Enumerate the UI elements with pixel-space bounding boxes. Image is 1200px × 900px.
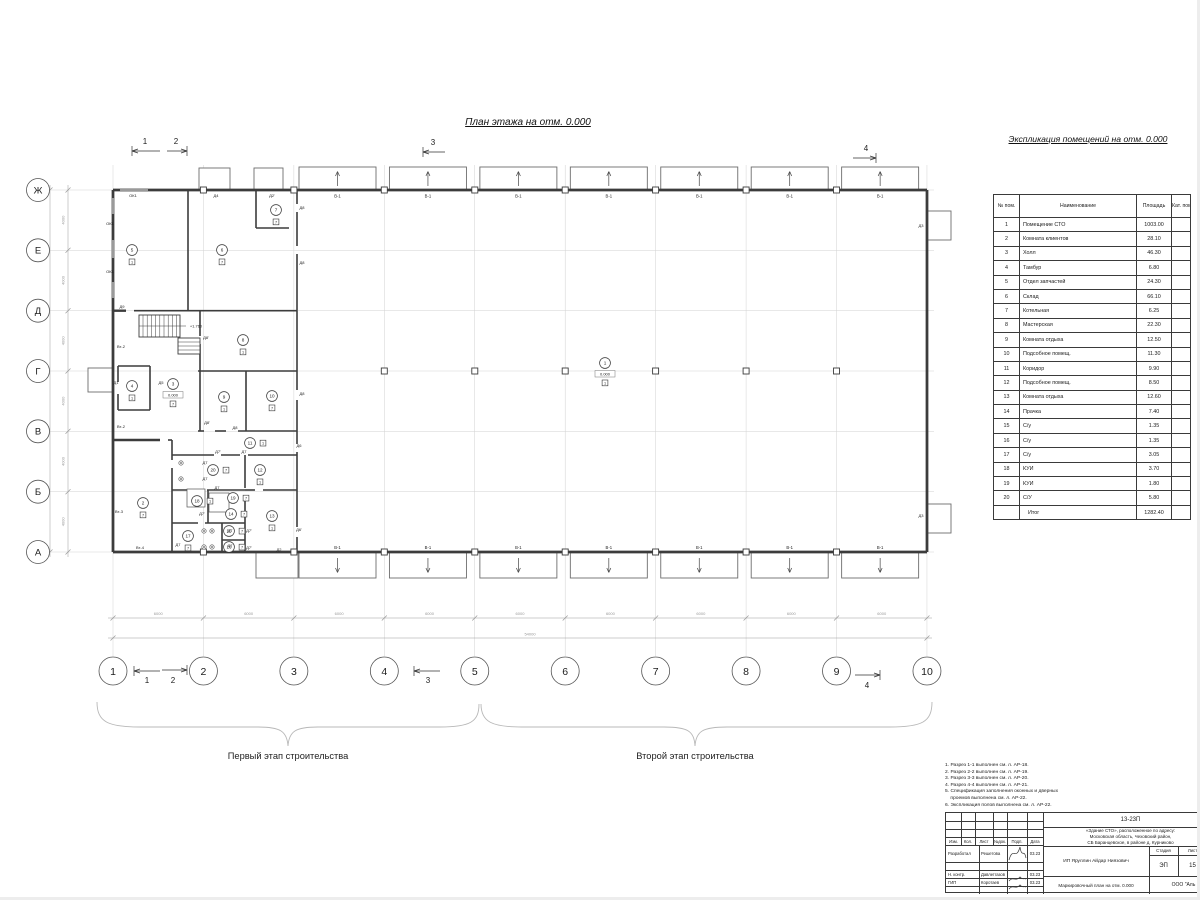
table-cell-nm: Комната отдыха xyxy=(1020,390,1137,404)
table-cell-nm: Подсобное помещ. xyxy=(1020,347,1137,361)
table-row: 15С/у1.35 xyxy=(994,419,1191,433)
col-area: Площадь xyxy=(1137,195,1172,218)
floor-mark-text: 1 xyxy=(209,500,211,504)
door-label: Д7 xyxy=(203,476,209,481)
tb-role: Разработал xyxy=(946,845,981,862)
table-row: 16С/у1.35 xyxy=(994,433,1191,447)
gate-label: В-1 xyxy=(696,545,703,550)
axis-label: 9 xyxy=(834,666,840,678)
door-label: Д7' xyxy=(246,545,252,550)
gate-label: В-1 xyxy=(334,545,341,550)
tb-col-header: Изм. xyxy=(946,837,961,845)
stage2-label: Второй этап строительства xyxy=(575,751,815,761)
dim-value: 6000 xyxy=(425,611,435,616)
table-row: 14Прачка7.40 xyxy=(994,405,1191,419)
table-cell-ar: 22.30 xyxy=(1137,318,1172,332)
drawing-sheet: { "page": { "plan_title": "План этажа на… xyxy=(0,0,1200,900)
table-cell-ct xyxy=(1172,232,1191,246)
gate-label: В-1 xyxy=(696,194,703,199)
door-label: ОК1 xyxy=(129,193,137,198)
axis-label: 10 xyxy=(921,666,933,678)
axis-label: 6 xyxy=(562,666,568,678)
room-number-text: 20 xyxy=(210,468,216,473)
table-cell-ct xyxy=(1172,218,1191,232)
room-number-text: 1 xyxy=(604,361,607,366)
tb-date: 03.23 xyxy=(1027,845,1043,862)
tb-name: Решетова xyxy=(979,845,1009,862)
tb-date: 03.23 xyxy=(1027,870,1043,878)
note-line: 1. Разрез 1-1 выполнен см. л. АР-18. xyxy=(945,763,1195,770)
room-number-text: 18 xyxy=(194,499,200,504)
col-num: № пом. xyxy=(994,195,1020,218)
tb-col-header: Дата xyxy=(1027,837,1043,845)
table-cell-ct xyxy=(1172,261,1191,275)
table-cell-nm: Подсобное помещ. xyxy=(1020,376,1137,390)
door-label: Д2 xyxy=(277,547,283,552)
tb-name: Коротаев xyxy=(979,878,1009,886)
table-row: 3Холл46.30 xyxy=(994,246,1191,260)
table-cell-num: 19 xyxy=(994,477,1020,491)
axis-label: 7 xyxy=(653,666,659,678)
document-number: 13-23П xyxy=(1043,813,1200,827)
room-number-text: 6 xyxy=(221,248,224,253)
door-label: Д2' xyxy=(269,193,275,198)
axis-label: 8 xyxy=(743,666,749,678)
dim-value: 6000 xyxy=(787,611,797,616)
section-mark: 2 xyxy=(171,676,176,685)
door-label: Вт-2 xyxy=(117,344,126,349)
level-value: 0.000 xyxy=(168,393,179,398)
column xyxy=(653,549,659,555)
table-cell-ct xyxy=(1172,505,1191,519)
table-row: 8Мастерская22.30 xyxy=(994,318,1191,332)
fixture xyxy=(210,529,214,533)
table-cell-nm: Мастерская xyxy=(1020,318,1137,332)
table-cell-nm: С/у xyxy=(1020,419,1137,433)
door-label: Д1 xyxy=(114,380,120,385)
explication-title: Экспликация помещений на отм. 0.000 xyxy=(984,134,1192,144)
drawing-title: Маркировочный план на отм. 0.000 xyxy=(1043,876,1149,894)
table-row: 10Подсобное помещ.11.30 xyxy=(994,347,1191,361)
gate-label: В-1 xyxy=(606,194,613,199)
column xyxy=(834,549,840,555)
section-mark: 2 xyxy=(174,137,179,146)
table-row: 5Отдел запчастей24.30 xyxy=(994,275,1191,289)
floor-mark-text: 7 xyxy=(221,260,223,264)
floor-mark-text: 1 xyxy=(242,350,244,354)
table-cell-num: 14 xyxy=(994,405,1020,419)
note-line: 6. Экспликация полов выполнена см. л. АР… xyxy=(945,803,1195,810)
porch xyxy=(927,504,951,533)
table-cell-nm: Коридор xyxy=(1020,361,1137,375)
axis-label: 2 xyxy=(201,666,207,678)
gate-label: В-1 xyxy=(334,194,341,199)
table-cell-num xyxy=(994,505,1020,519)
table-cell-ct xyxy=(1172,462,1191,476)
floor-mark-text: 7 xyxy=(142,513,144,517)
table-cell-num: 2 xyxy=(994,232,1020,246)
stage2-brace xyxy=(481,702,932,746)
column xyxy=(472,187,478,193)
table-row: 12Подсобное помещ.8.50 xyxy=(994,376,1191,390)
axis-label: А xyxy=(35,547,42,558)
level-value: 0.000 xyxy=(600,372,611,377)
table-cell-nm: С/у xyxy=(1020,448,1137,462)
door-label: Д3 xyxy=(919,223,925,228)
table-cell-ct xyxy=(1172,361,1191,375)
table-cell-ar: 1.80 xyxy=(1137,477,1172,491)
section-mark: 4 xyxy=(864,144,869,153)
section-mark: 4 xyxy=(865,681,870,690)
room-number-text: 2 xyxy=(142,501,145,506)
door-label: Д7 xyxy=(176,542,182,547)
table-cell-ar: 6.80 xyxy=(1137,261,1172,275)
dim-value: 6000 xyxy=(877,611,887,616)
floor-mark-text: 1 xyxy=(131,260,133,264)
column xyxy=(562,187,568,193)
table-cell-nm: Комната клиентов xyxy=(1020,232,1137,246)
door-label: Д7 xyxy=(228,543,234,548)
gate-label: В-1 xyxy=(425,545,432,550)
table-cell-ar: 24.30 xyxy=(1137,275,1172,289)
door-label: Д8 xyxy=(300,391,306,396)
door-label: Д7 xyxy=(228,528,234,533)
table-cell-num: 9 xyxy=(994,333,1020,347)
stage1-brace xyxy=(97,702,479,746)
total-label: Итог xyxy=(1020,505,1137,519)
table-cell-nm: Отдел запчастей xyxy=(1020,275,1137,289)
axis-label: Д xyxy=(35,306,42,317)
axis-label: 3 xyxy=(291,666,297,678)
fixture xyxy=(202,529,206,533)
door-label: Д8 xyxy=(300,260,306,265)
table-cell-nm: Склад xyxy=(1020,289,1137,303)
floor-mark-text: 7 xyxy=(187,546,189,550)
table-row: 18КУИ3.70 xyxy=(994,462,1191,476)
gate-label: В-1 xyxy=(786,545,793,550)
stage-value: ЭП xyxy=(1149,855,1178,876)
plan-title: План этажа на отм. 0.000 xyxy=(408,117,648,128)
dim-value: 6000 xyxy=(696,611,706,616)
table-row: 4Тамбур6.80 xyxy=(994,261,1191,275)
column xyxy=(291,187,297,193)
table-cell-nm: Холл xyxy=(1020,246,1137,260)
section-mark: 1 xyxy=(145,676,150,685)
dim-value: 4000 xyxy=(61,215,66,225)
table-cell-num: 1 xyxy=(994,218,1020,232)
table-cell-num: 7 xyxy=(994,304,1020,318)
table-cell-nm: С/у xyxy=(1020,433,1137,447)
door-label: Д7' xyxy=(246,528,252,533)
gate-label: В-1 xyxy=(606,545,613,550)
door-label: Вт-3 xyxy=(115,509,124,514)
gate-label: В-1 xyxy=(877,545,884,550)
table-cell-ar: 12.50 xyxy=(1137,333,1172,347)
table-cell-ct xyxy=(1172,289,1191,303)
gate-label: В-1 xyxy=(515,194,522,199)
table-cell-num: 4 xyxy=(994,261,1020,275)
door-label: Д7' xyxy=(199,511,205,516)
dim-value: 6000 xyxy=(335,611,345,616)
table-cell-ar: 8.50 xyxy=(1137,376,1172,390)
table-cell-ar: 11.30 xyxy=(1137,347,1172,361)
dim-value: 6000 xyxy=(244,611,254,616)
table-cell-ct xyxy=(1172,448,1191,462)
column xyxy=(743,549,749,555)
floor-mark-text: 1 xyxy=(259,480,261,484)
fixture xyxy=(202,545,206,549)
column xyxy=(653,187,659,193)
porch xyxy=(256,552,298,578)
column xyxy=(743,368,749,374)
dim-value: 4000 xyxy=(61,456,66,466)
table-cell-ar: 12.60 xyxy=(1137,390,1172,404)
company-name: ООО "Аль xyxy=(1149,876,1200,894)
table-cell-num: 11 xyxy=(994,361,1020,375)
door-label: Д8' xyxy=(203,335,209,340)
table-cell-ct xyxy=(1172,246,1191,260)
room-number-text: 7 xyxy=(275,208,278,213)
section-mark: 3 xyxy=(431,138,436,147)
table-header-row: № пом. Наименование Площадь Кат. пом. xyxy=(994,195,1191,218)
dim-value: 6000 xyxy=(516,611,526,616)
door-label: Д8 xyxy=(233,425,239,430)
door-label: Д7 xyxy=(203,460,209,465)
column xyxy=(291,549,297,555)
table-cell-nm: С/У xyxy=(1020,491,1137,505)
table-cell-num: 20 xyxy=(994,491,1020,505)
tb-name: Давлетгазов xyxy=(979,870,1009,878)
column xyxy=(562,549,568,555)
column xyxy=(562,368,568,374)
door-label: ОК1 xyxy=(106,269,114,274)
table-row: 19КУИ1.80 xyxy=(994,477,1191,491)
col-cat: Кат. пом. xyxy=(1172,195,1191,218)
table-cell-ar: 46.30 xyxy=(1137,246,1172,260)
table-cell-nm: КУИ xyxy=(1020,462,1137,476)
table-cell-nm: Тамбур xyxy=(1020,261,1137,275)
floor-mark-text: 1 xyxy=(271,526,273,530)
axis-label: 1 xyxy=(110,666,116,678)
axis-label: В xyxy=(35,427,41,438)
axis-label: Ж xyxy=(34,185,43,196)
tb-role: Н. контр. xyxy=(946,870,981,878)
dim-value: 4000 xyxy=(61,396,66,406)
door-label: Д6 xyxy=(297,443,303,448)
table-cell-ct xyxy=(1172,318,1191,332)
room-number-text: 4 xyxy=(131,384,134,389)
object-address: «Здание СТО», расположенное по адресу:Мо… xyxy=(1043,827,1200,847)
floor-mark-text: 7 xyxy=(245,497,247,501)
floor-mark-text: 7 xyxy=(275,220,277,224)
room-number-text: 14 xyxy=(228,512,234,517)
table-cell-ar: 6.25 xyxy=(1137,304,1172,318)
table-cell-ct xyxy=(1172,405,1191,419)
client-name: ИП Яруллин Айдар Ниязович xyxy=(1043,846,1149,876)
table-row: 6Склад66.10 xyxy=(994,289,1191,303)
door-label: Д8' xyxy=(204,420,210,425)
stage1-label: Первый этап строительства xyxy=(168,751,408,761)
floor-mark-text: 7 xyxy=(241,546,243,550)
table-cell-num: 12 xyxy=(994,376,1020,390)
floor-mark-text: 1 xyxy=(262,442,264,446)
tb-col-header: Подп. xyxy=(1007,837,1027,845)
table-row: 20С/У5.80 xyxy=(994,491,1191,505)
room-number-text: 12 xyxy=(257,468,263,473)
porch xyxy=(927,211,951,240)
door-label: Д5 xyxy=(159,380,165,385)
room-number-text: 19 xyxy=(230,496,236,501)
table-cell-ar: 1003.00 xyxy=(1137,218,1172,232)
table-cell-num: 10 xyxy=(994,347,1020,361)
table-row: 9Комната отдыха12.50 xyxy=(994,333,1191,347)
floor-mark-text: 1 xyxy=(604,381,606,385)
room-schedule-table: № пом. Наименование Площадь Кат. пом. 1П… xyxy=(993,194,1191,520)
column xyxy=(472,549,478,555)
note-line: 5. Спецификация заполнения оконных и две… xyxy=(945,789,1195,796)
axis-label: Б xyxy=(35,487,41,498)
door-label: Вт-2 xyxy=(117,424,126,429)
tb-col-header: Лист xyxy=(975,837,993,845)
table-cell-ct xyxy=(1172,376,1191,390)
col-name: Наименование xyxy=(1020,195,1137,218)
tb-date: 03.23 xyxy=(1027,878,1043,886)
gate-label: В-1 xyxy=(786,194,793,199)
table-row: 11Коридор9.90 xyxy=(994,361,1191,375)
axis-label: Е xyxy=(35,246,41,257)
fixture xyxy=(179,461,183,465)
tb-col-header: №док. xyxy=(993,837,1007,845)
room-number-text: 3 xyxy=(172,382,175,387)
dim-value: 6000 xyxy=(154,611,164,616)
dim-value: 4000 xyxy=(61,275,66,285)
column xyxy=(834,187,840,193)
table-cell-num: 8 xyxy=(994,318,1020,332)
table-cell-ar: 66.10 xyxy=(1137,289,1172,303)
table-cell-ct xyxy=(1172,419,1191,433)
door-label: Д4 xyxy=(214,193,220,198)
dim-value: 6000 xyxy=(606,611,616,616)
column xyxy=(200,187,206,193)
sheet-notes: 1. Разрез 1-1 выполнен см. л. АР-18.2. Р… xyxy=(945,763,1195,809)
section-mark: 1 xyxy=(143,137,148,146)
floor-mark-text: 7 xyxy=(241,530,243,534)
room-number-text: 9 xyxy=(223,395,226,400)
table-cell-ct xyxy=(1172,333,1191,347)
tb-col-header: Кол. xyxy=(961,837,975,845)
column xyxy=(653,368,659,374)
column xyxy=(381,187,387,193)
room-number-text: 8 xyxy=(242,338,245,343)
table-total-row: Итог1282.40 xyxy=(994,505,1191,519)
table-cell-ct xyxy=(1172,304,1191,318)
table-row: 2Комната клиентов28.10 xyxy=(994,232,1191,246)
table-cell-ar: 9.90 xyxy=(1137,361,1172,375)
axis-label: 4 xyxy=(381,666,387,678)
dim-value: 4000 xyxy=(61,336,66,346)
title-block: Изм.Кол.Лист№док.Подп.Дата РазработалРеш… xyxy=(945,812,1200,893)
gate-label: В-1 xyxy=(425,194,432,199)
table-cell-ar: 7.40 xyxy=(1137,405,1172,419)
table-cell-num: 3 xyxy=(994,246,1020,260)
room-number-text: 11 xyxy=(248,441,253,446)
table-cell-num: 5 xyxy=(994,275,1020,289)
room-number-text: 10 xyxy=(269,394,275,399)
table-row: 13Комната отдыха12.60 xyxy=(994,390,1191,404)
table-cell-num: 16 xyxy=(994,433,1020,447)
signature-icon xyxy=(1007,845,1027,862)
total-value: 1282.40 xyxy=(1137,505,1172,519)
fixture xyxy=(179,477,183,481)
axis-label: Г xyxy=(35,366,40,377)
dim-total: 54000 xyxy=(524,632,536,637)
table-cell-nm: Помещение СТО xyxy=(1020,218,1137,232)
table-cell-ct xyxy=(1172,390,1191,404)
door-label: Д7 xyxy=(242,449,248,454)
table-cell-ct xyxy=(1172,275,1191,289)
table-cell-nm: КУИ xyxy=(1020,477,1137,491)
table-cell-ct xyxy=(1172,477,1191,491)
floor-mark-text: 7 xyxy=(271,406,273,410)
tb-role: ГИП xyxy=(946,878,981,886)
gate-label: В-1 xyxy=(515,545,522,550)
table-cell-ar: 5.80 xyxy=(1137,491,1172,505)
porch xyxy=(254,168,283,190)
table-row: 7Котельная6.25 xyxy=(994,304,1191,318)
table-cell-num: 17 xyxy=(994,448,1020,462)
table-cell-num: 6 xyxy=(994,289,1020,303)
door-label: Д8 xyxy=(300,205,306,210)
door-label: ОК1 xyxy=(106,221,114,226)
entrance-porch xyxy=(88,368,113,392)
column xyxy=(200,549,206,555)
signature-icon xyxy=(1007,870,1027,878)
floor-mark-text: 1 xyxy=(223,407,225,411)
section-mark: 3 xyxy=(426,676,431,685)
column xyxy=(381,368,387,374)
table-cell-ct xyxy=(1172,347,1191,361)
table-cell-nm: Комната отдыха xyxy=(1020,333,1137,347)
door-label: Д7' xyxy=(215,449,221,454)
table-cell-ar: 3.70 xyxy=(1137,462,1172,476)
table-cell-ct xyxy=(1172,433,1191,447)
door-label: Вт-4 xyxy=(136,545,145,550)
fixture xyxy=(210,545,214,549)
signature-icon xyxy=(1007,878,1027,886)
table-cell-ar: 3.05 xyxy=(1137,448,1172,462)
floor-mark-text: 7 xyxy=(225,469,227,473)
room-number-text: 13 xyxy=(269,514,275,519)
floor-mark-text: 1 xyxy=(131,396,133,400)
table-cell-num: 13 xyxy=(994,390,1020,404)
table-row: 17С/у3.05 xyxy=(994,448,1191,462)
table-cell-nm: Прачка xyxy=(1020,405,1137,419)
door-label: Д6' xyxy=(296,527,302,532)
column xyxy=(381,549,387,555)
column xyxy=(743,187,749,193)
stair-level: +1.760 xyxy=(190,324,203,329)
table-cell-num: 18 xyxy=(994,462,1020,476)
floor-mark-text: 7 xyxy=(172,402,174,406)
table-cell-ct xyxy=(1172,491,1191,505)
table-cell-num: 15 xyxy=(994,419,1020,433)
room-number-text: 5 xyxy=(131,248,134,253)
gate-label: В-1 xyxy=(877,194,884,199)
note-line: проемов выполнена см. л. АР-22. xyxy=(945,796,1195,803)
door-label: Д7 xyxy=(215,485,221,490)
column xyxy=(472,368,478,374)
door-label: Д3 xyxy=(919,513,925,518)
